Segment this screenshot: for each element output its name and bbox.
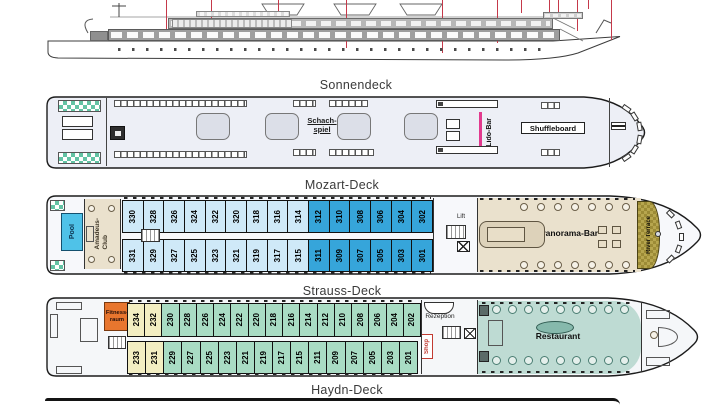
cabin-225: 225 bbox=[201, 342, 219, 373]
table-icon bbox=[650, 331, 658, 339]
cabin-215: 215 bbox=[291, 342, 309, 373]
sun-loungers bbox=[50, 200, 65, 211]
table-icon bbox=[604, 356, 613, 365]
leader-line bbox=[611, 0, 612, 40]
lift-icon bbox=[464, 328, 476, 339]
cabin-307: 307 bbox=[350, 240, 371, 271]
window-ticks bbox=[480, 270, 635, 272]
table-icon bbox=[598, 240, 607, 248]
reception-label: Rezeption bbox=[417, 313, 463, 322]
leader-line bbox=[588, 0, 589, 9]
table-icon bbox=[646, 357, 670, 366]
mozart-cabin-row-odd: 3313293273253233213193173153113093073053… bbox=[122, 239, 433, 272]
table-icon bbox=[605, 203, 613, 211]
cabin-221: 221 bbox=[237, 342, 255, 373]
cabin-218: 218 bbox=[266, 304, 283, 336]
table-icon bbox=[520, 203, 528, 211]
table-icon bbox=[605, 261, 613, 269]
table-icon bbox=[571, 261, 579, 269]
grill-icon bbox=[110, 126, 125, 140]
table-icon bbox=[508, 356, 517, 365]
stairs-icon bbox=[141, 229, 160, 242]
table-icon bbox=[588, 305, 597, 314]
sun-loungers bbox=[50, 260, 65, 271]
fitness-room-label: Fitness- raum bbox=[106, 310, 128, 324]
cabin-316: 316 bbox=[268, 201, 289, 232]
table-icon bbox=[556, 356, 565, 365]
table-icon bbox=[537, 203, 545, 211]
window-ticks bbox=[482, 371, 632, 373]
cabin-320: 320 bbox=[226, 201, 247, 232]
cabin-327: 327 bbox=[164, 240, 185, 271]
cabin-318: 318 bbox=[247, 201, 268, 232]
cabin-219: 219 bbox=[255, 342, 273, 373]
table-icon bbox=[556, 305, 565, 314]
table-icon bbox=[488, 320, 503, 346]
cabin-308: 308 bbox=[350, 201, 371, 232]
window-ticks bbox=[124, 272, 431, 274]
stern-structure bbox=[90, 31, 108, 41]
cabin-309: 309 bbox=[330, 240, 351, 271]
cabin-204: 204 bbox=[387, 304, 404, 336]
cabin-214: 214 bbox=[300, 304, 317, 336]
strauss-cabin-row-odd: 2332312292272252232212192172152112092072… bbox=[127, 341, 418, 374]
cabin-305: 305 bbox=[371, 240, 392, 271]
table-icon bbox=[80, 318, 98, 342]
cabin-210: 210 bbox=[335, 304, 352, 336]
cabin-328: 328 bbox=[144, 201, 165, 232]
river-terrace-label: River Terrace bbox=[646, 216, 652, 254]
table-icon bbox=[588, 356, 597, 365]
deck-chairs-row bbox=[329, 149, 374, 156]
wheelhouse-windows bbox=[543, 12, 583, 19]
stairs-icon bbox=[108, 336, 126, 349]
mast-icon bbox=[655, 231, 661, 237]
table-icon bbox=[62, 129, 93, 140]
wall-divider bbox=[477, 198, 478, 272]
window-ticks bbox=[129, 373, 417, 375]
lift-label: Lift bbox=[446, 214, 476, 223]
table-icon bbox=[572, 356, 581, 365]
table-icon bbox=[88, 256, 95, 263]
cabin-317: 317 bbox=[268, 240, 289, 271]
table-icon bbox=[622, 203, 630, 211]
cabin-233: 233 bbox=[128, 342, 146, 373]
cabin-326: 326 bbox=[164, 201, 185, 232]
mozart-cabin-row-even: 3303283263243223203183163143123103083063… bbox=[122, 200, 433, 233]
window-ticks bbox=[480, 198, 635, 200]
table-icon bbox=[588, 203, 596, 211]
cabin-209: 209 bbox=[327, 342, 345, 373]
cabin-324: 324 bbox=[185, 201, 206, 232]
table-icon bbox=[88, 205, 95, 212]
cabin-230: 230 bbox=[162, 304, 179, 336]
cabin-310: 310 bbox=[330, 201, 351, 232]
amadeus-club-label: Amadeus- Club bbox=[94, 218, 110, 249]
table-icon bbox=[50, 314, 58, 338]
deck-chairs-row bbox=[329, 100, 368, 107]
cabin-304: 304 bbox=[392, 201, 413, 232]
table-icon bbox=[524, 305, 533, 314]
deck-chairs-row bbox=[541, 149, 560, 156]
table-icon bbox=[554, 203, 562, 211]
table-icon bbox=[86, 226, 94, 242]
table-icon bbox=[492, 356, 501, 365]
table-icon bbox=[620, 305, 629, 314]
cabin-319: 319 bbox=[247, 240, 268, 271]
cabin-323: 323 bbox=[206, 240, 227, 271]
cabin-231: 231 bbox=[146, 342, 164, 373]
table-icon bbox=[446, 119, 460, 129]
wall-divider bbox=[106, 98, 107, 166]
cabin-306: 306 bbox=[371, 201, 392, 232]
wall-divider bbox=[641, 302, 642, 372]
cabin-217: 217 bbox=[273, 342, 291, 373]
cabin-301: 301 bbox=[412, 240, 432, 271]
stairs-icon bbox=[442, 326, 461, 339]
stern-glass bbox=[172, 19, 292, 28]
strauss-cabin-row-even: 2342322302282262242222202182162142122102… bbox=[127, 303, 421, 337]
deck-chairs-row bbox=[541, 102, 560, 109]
hull-windows-lower bbox=[108, 29, 560, 41]
deck-label-mozart: Mozart-Deck bbox=[242, 178, 442, 192]
sun-loungers bbox=[58, 152, 101, 164]
table-icon bbox=[572, 305, 581, 314]
shop-label: Shop bbox=[424, 339, 430, 354]
cabin-224: 224 bbox=[214, 304, 231, 336]
lido-bar-text: Lido-Bar bbox=[486, 118, 493, 147]
deck-label-strauss: Strauss-Deck bbox=[242, 284, 442, 298]
ship-deck-plan: Sonnendeck Schach- spiel Lido-Bar Shuffl… bbox=[0, 0, 720, 405]
reception-desk bbox=[424, 302, 454, 314]
cabin-222: 222 bbox=[231, 304, 248, 336]
service-station bbox=[479, 351, 489, 362]
wall-divider bbox=[609, 98, 610, 167]
cabin-226: 226 bbox=[197, 304, 214, 336]
cabin-206: 206 bbox=[369, 304, 386, 336]
cabin-311: 311 bbox=[309, 240, 330, 271]
cabin-212: 212 bbox=[318, 304, 335, 336]
deck-chairs-row bbox=[114, 151, 247, 158]
table-icon bbox=[62, 116, 93, 127]
haydn-deck-edge bbox=[45, 398, 620, 405]
pool-label: Pool bbox=[69, 224, 76, 239]
table-icon bbox=[108, 205, 115, 212]
sun-loungers bbox=[58, 100, 101, 112]
table-icon bbox=[537, 261, 545, 269]
deck-chairs-row bbox=[114, 100, 247, 107]
table-icon bbox=[56, 366, 82, 374]
table-icon bbox=[554, 261, 562, 269]
cabin-228: 228 bbox=[180, 304, 197, 336]
awning-canopy bbox=[404, 113, 438, 140]
window-ticks bbox=[124, 197, 431, 199]
cabin-208: 208 bbox=[352, 304, 369, 336]
table-icon bbox=[604, 305, 613, 314]
cabin-201: 201 bbox=[400, 342, 417, 373]
shuffleboard-court bbox=[436, 146, 498, 154]
table-icon bbox=[598, 226, 607, 234]
table-icon bbox=[612, 240, 621, 248]
service-station bbox=[479, 305, 489, 316]
table-icon bbox=[620, 356, 629, 365]
cabin-331: 331 bbox=[123, 240, 144, 271]
stairs-icon bbox=[446, 225, 466, 239]
deck-label-sonnendeck: Sonnendeck bbox=[256, 78, 456, 92]
window-ticks bbox=[129, 300, 417, 302]
deck-chairs-row bbox=[293, 100, 316, 107]
cabin-216: 216 bbox=[283, 304, 300, 336]
cabin-314: 314 bbox=[288, 201, 309, 232]
table-icon bbox=[588, 261, 596, 269]
cabin-223: 223 bbox=[219, 342, 237, 373]
table-icon bbox=[646, 310, 670, 319]
table-icon bbox=[446, 131, 460, 141]
table-icon bbox=[540, 356, 549, 365]
cabin-315: 315 bbox=[288, 240, 309, 271]
cabin-220: 220 bbox=[249, 304, 266, 336]
cabin-232: 232 bbox=[145, 304, 162, 336]
porthole-row bbox=[118, 48, 548, 51]
cabin-211: 211 bbox=[309, 342, 327, 373]
cabin-207: 207 bbox=[346, 342, 364, 373]
table-icon bbox=[487, 227, 525, 242]
cabin-322: 322 bbox=[206, 201, 227, 232]
table-icon bbox=[508, 305, 517, 314]
wall-divider bbox=[477, 300, 478, 374]
awning-canopy bbox=[196, 113, 230, 140]
cabin-329: 329 bbox=[144, 240, 165, 271]
cabin-205: 205 bbox=[364, 342, 382, 373]
table-icon bbox=[492, 305, 501, 314]
bow-gate-icon bbox=[611, 122, 626, 130]
lift-icon bbox=[457, 241, 470, 252]
cabin-229: 229 bbox=[164, 342, 182, 373]
buffet-counter bbox=[536, 321, 574, 334]
shuffleboard-label: Shuffleboard bbox=[521, 122, 585, 134]
cabin-234: 234 bbox=[128, 304, 145, 336]
deck-chair-icon bbox=[679, 233, 684, 241]
table-icon bbox=[571, 203, 579, 211]
table-icon bbox=[540, 305, 549, 314]
deck-chairs-row bbox=[293, 149, 316, 156]
wall-divider bbox=[421, 300, 422, 374]
window-ticks bbox=[482, 302, 632, 304]
cabin-325: 325 bbox=[185, 240, 206, 271]
table-icon bbox=[524, 356, 533, 365]
leader-line bbox=[521, 0, 522, 13]
cabin-330: 330 bbox=[123, 201, 144, 232]
table-icon bbox=[622, 261, 630, 269]
awning-canopy bbox=[337, 113, 371, 140]
windbreak-icon bbox=[196, 11, 290, 17]
cabin-302: 302 bbox=[412, 201, 432, 232]
cabin-312: 312 bbox=[309, 201, 330, 232]
cabin-303: 303 bbox=[392, 240, 413, 271]
shop: Shop bbox=[421, 334, 433, 359]
table-icon bbox=[612, 226, 621, 234]
cabin-203: 203 bbox=[382, 342, 400, 373]
pool: Pool bbox=[61, 213, 83, 251]
awning-canopy bbox=[265, 113, 299, 140]
wall-divider bbox=[433, 198, 434, 272]
shuffleboard-court bbox=[436, 100, 498, 108]
deck-label-haydn: Haydn-Deck bbox=[247, 383, 447, 397]
table-icon bbox=[108, 256, 115, 263]
table-icon bbox=[56, 302, 82, 310]
cabin-321: 321 bbox=[226, 240, 247, 271]
table-icon bbox=[520, 261, 528, 269]
cabin-227: 227 bbox=[182, 342, 200, 373]
